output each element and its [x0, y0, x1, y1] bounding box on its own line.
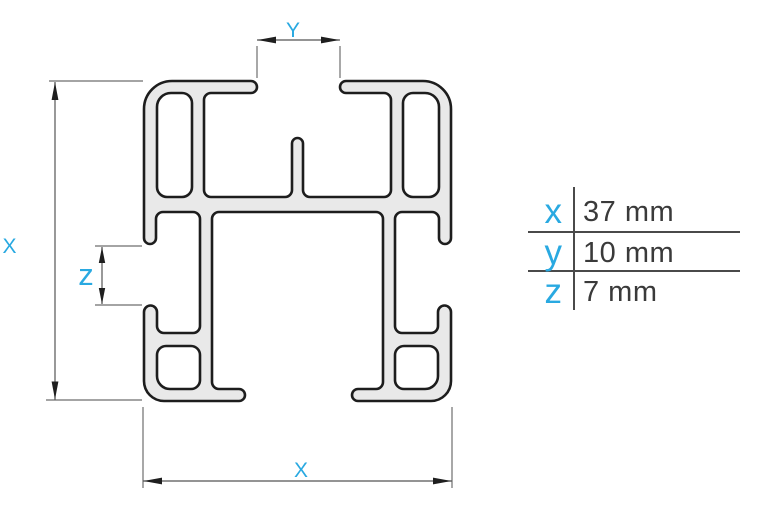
dimension-key: z [528, 274, 573, 310]
dimension-label-x-bottom: X [288, 460, 314, 481]
dimension-y [257, 37, 340, 78]
diagram-page: Y X z X x 37 mm y 10 mm z 7 mm [0, 0, 760, 507]
table-row: y 10 mm [528, 233, 740, 272]
dimensions-table: x 37 mm y 10 mm z 7 mm [528, 190, 740, 310]
arrow-down-icon [52, 382, 59, 400]
dimension-label-z: z [71, 259, 101, 290]
dimension-key: y [528, 235, 573, 271]
table-row: z 7 mm [528, 272, 740, 311]
profile-cross-section [144, 81, 451, 401]
arrow-right-icon [321, 37, 340, 44]
arrow-right-icon [433, 478, 452, 485]
dimension-value: 10 mm [573, 237, 674, 269]
dimension-label-x-left: X [0, 236, 19, 257]
arrow-left-icon [144, 478, 163, 485]
arrow-down-icon [99, 288, 105, 304]
dimension-x-left [46, 81, 143, 400]
dimension-key: x [528, 194, 573, 230]
arrow-up-icon [52, 82, 59, 100]
dimension-value: 37 mm [573, 196, 674, 228]
dimension-z [95, 246, 142, 305]
table-row: x 37 mm [528, 192, 740, 231]
dimension-value: 7 mm [573, 276, 658, 308]
dimension-label-y: Y [280, 20, 306, 41]
arrow-left-icon [258, 37, 277, 44]
